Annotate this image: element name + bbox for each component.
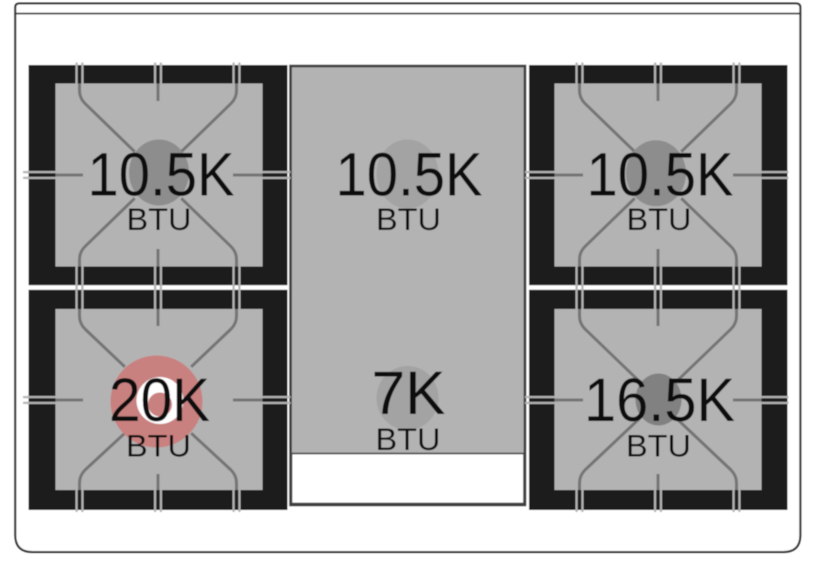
svg-text:16.5K: 16.5K <box>584 366 735 434</box>
svg-text:BTU: BTU <box>376 421 441 457</box>
svg-text:7K: 7K <box>372 359 446 427</box>
svg-text:10.5K: 10.5K <box>587 141 734 209</box>
svg-text:10.5K: 10.5K <box>336 141 483 209</box>
svg-text:BTU: BTU <box>127 201 192 237</box>
svg-text:BTU: BTU <box>626 428 691 464</box>
svg-text:10.5K: 10.5K <box>88 141 235 209</box>
svg-text:20K: 20K <box>109 366 210 434</box>
svg-text:BTU: BTU <box>627 201 692 237</box>
svg-text:BTU: BTU <box>126 428 191 464</box>
svg-text:BTU: BTU <box>376 201 441 237</box>
